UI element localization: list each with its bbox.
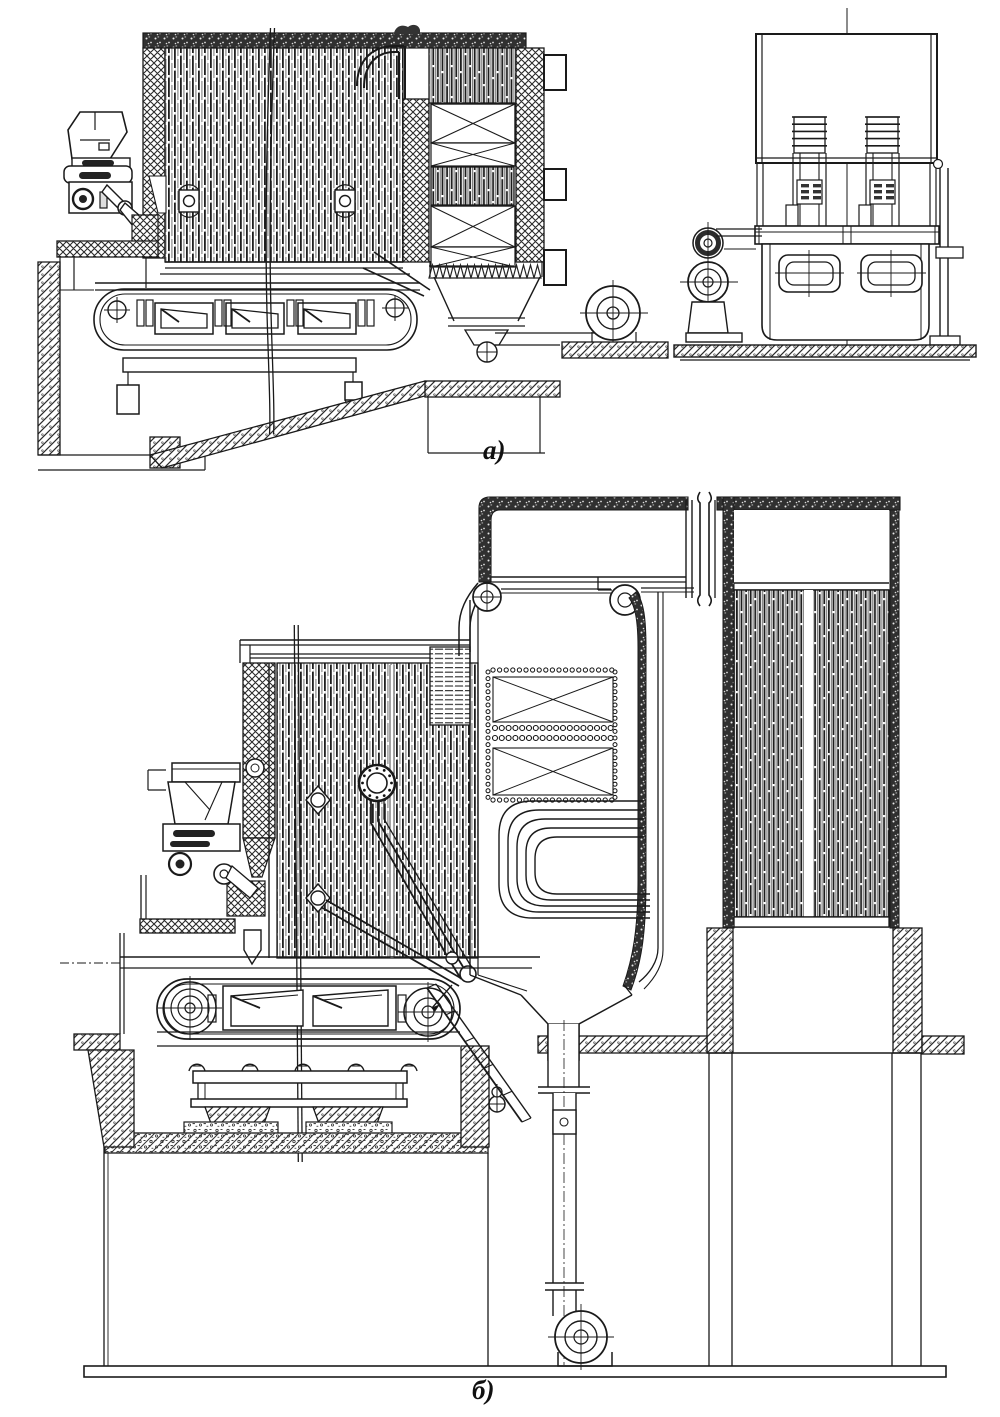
svg-text:б): б) (472, 1375, 494, 1405)
svg-text:а): а) (483, 435, 506, 465)
